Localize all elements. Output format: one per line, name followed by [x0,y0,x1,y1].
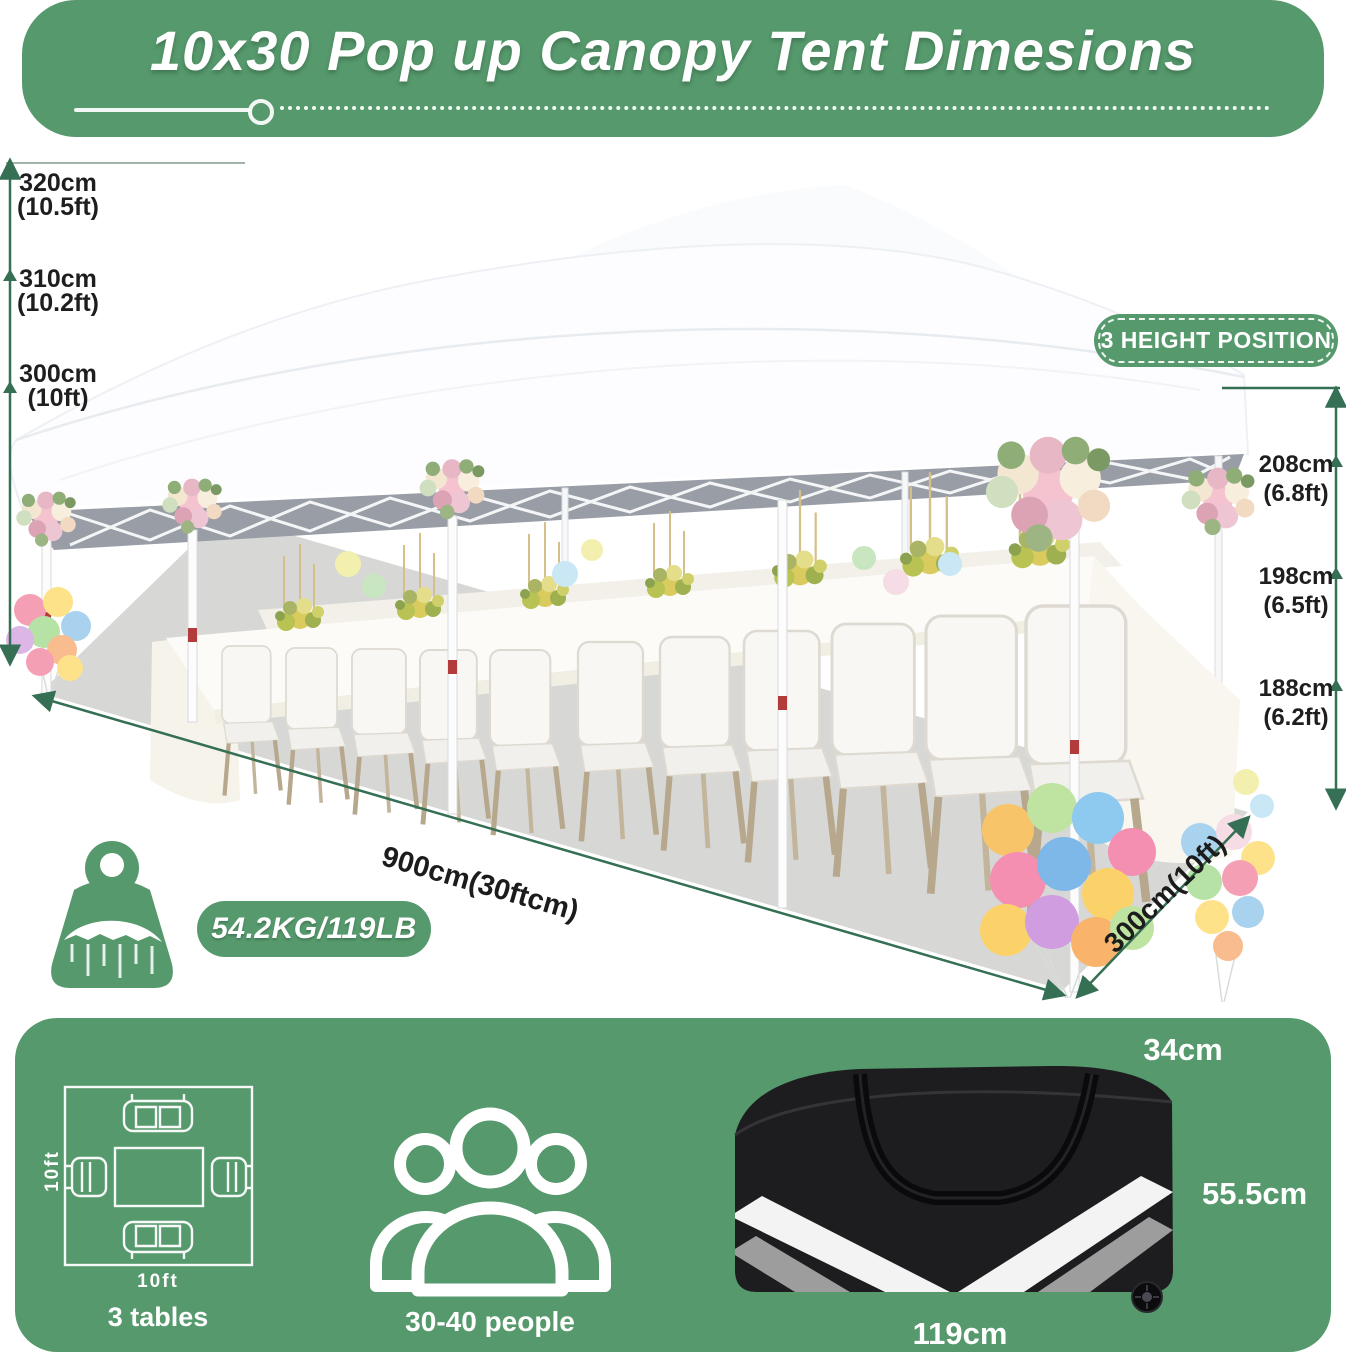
deco-line-dotted [280,106,1270,110]
deco-line-solid [74,108,250,112]
bag-height-label: 55.5cm [1202,1176,1342,1212]
weight-icon [50,838,190,996]
canopy-infographic: 10x30 Pop up Canopy Tent Dimesions 320cm… [0,0,1346,1361]
tables-height-label: 10ft [42,1142,64,1200]
page-title: 10x30 Pop up Canopy Tent Dimesions [22,18,1324,83]
tent-illustration [0,140,1280,1020]
tables-caption: 3 tables [58,1302,258,1333]
peak-height-310: 310cm (10.2ft) [10,267,106,315]
leg-height-188: 188cm (6.2ft) [1238,674,1346,732]
peak-height-300: 300cm (10ft) [10,362,106,410]
peak-height-320: 320cm (10.5ft) [10,171,106,219]
height-position-badge: 3 HEIGHT POSITION [1094,314,1338,367]
deco-line-ring [248,99,274,125]
tables-width-label: 10ft [132,1271,184,1293]
leg-height-208: 208cm (6.8ft) [1238,450,1346,508]
height-position-badge-label: 3 HEIGHT POSITION [1098,318,1334,363]
weight-badge: 54.2KG/119LB [197,901,431,957]
header-banner: 10x30 Pop up Canopy Tent Dimesions [22,0,1324,137]
carry-bag [700,1040,1260,1340]
bag-wheel [1132,1282,1162,1312]
bag-depth-label: 34cm [1128,1032,1238,1068]
people-icon [368,1086,613,1301]
bag-length-label: 119cm [830,1316,1090,1352]
people-caption: 30-40 people [355,1306,625,1338]
leg-height-198: 198cm (6.5ft) [1238,562,1346,620]
